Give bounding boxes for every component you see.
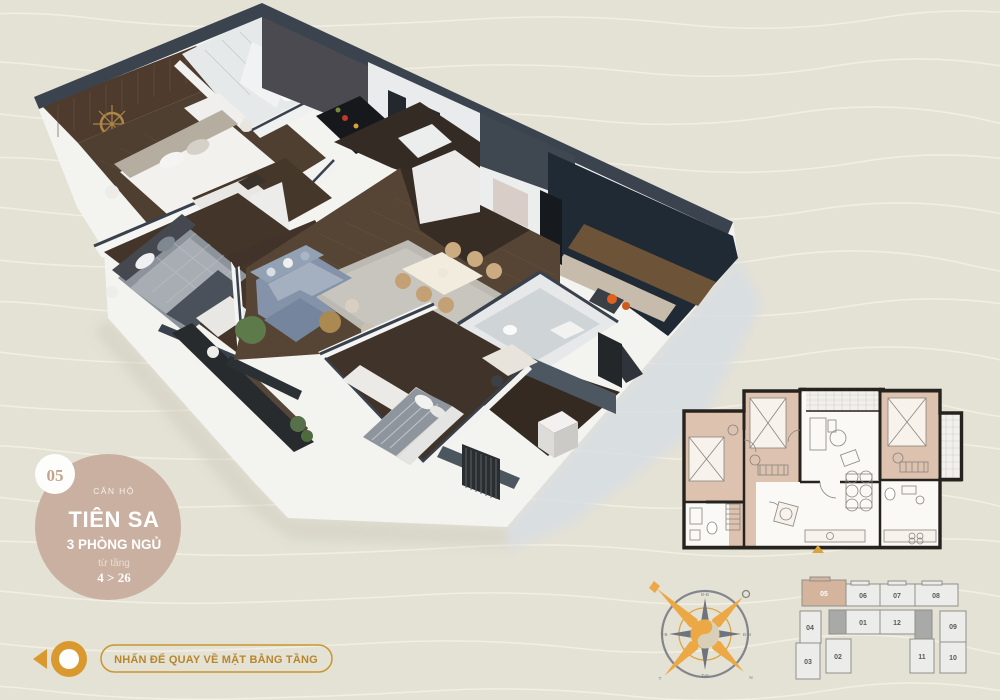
svg-text:từ tầng: từ tầng [98,557,130,569]
svg-text:05: 05 [820,591,828,598]
svg-text:CĂN HỘ: CĂN HỘ [93,486,134,496]
svg-text:02: 02 [834,654,842,661]
svg-text:T: T [659,676,662,681]
svg-text:12: 12 [893,620,901,627]
svg-text:Đ-B: Đ-B [701,592,709,597]
svg-text:04: 04 [806,625,814,632]
svg-text:03: 03 [804,659,812,666]
svg-text:3 PHÒNG NGỦ: 3 PHÒNG NGỦ [67,537,162,552]
svg-text:01: 01 [859,620,867,627]
svg-text:10: 10 [949,655,957,662]
svg-text:06: 06 [859,593,867,600]
svg-text:Đ-N: Đ-N [743,632,751,637]
svg-text:07: 07 [893,593,901,600]
svg-text:4 > 26: 4 > 26 [97,570,131,585]
svg-text:11: 11 [918,654,926,661]
svg-text:NHẤN ĐỂ QUAY VỀ MẶT BẰNG TẦNG: NHẤN ĐỂ QUAY VỀ MẶT BẰNG TẦNG [114,653,318,666]
svg-text:05: 05 [47,466,64,485]
svg-text:08: 08 [932,593,940,600]
svg-text:TIÊN SA: TIÊN SA [69,507,160,532]
svg-text:T-N: T-N [701,673,708,678]
svg-text:N: N [749,675,752,680]
svg-text:09: 09 [949,624,957,631]
svg-text:T-B: T-B [660,632,667,637]
